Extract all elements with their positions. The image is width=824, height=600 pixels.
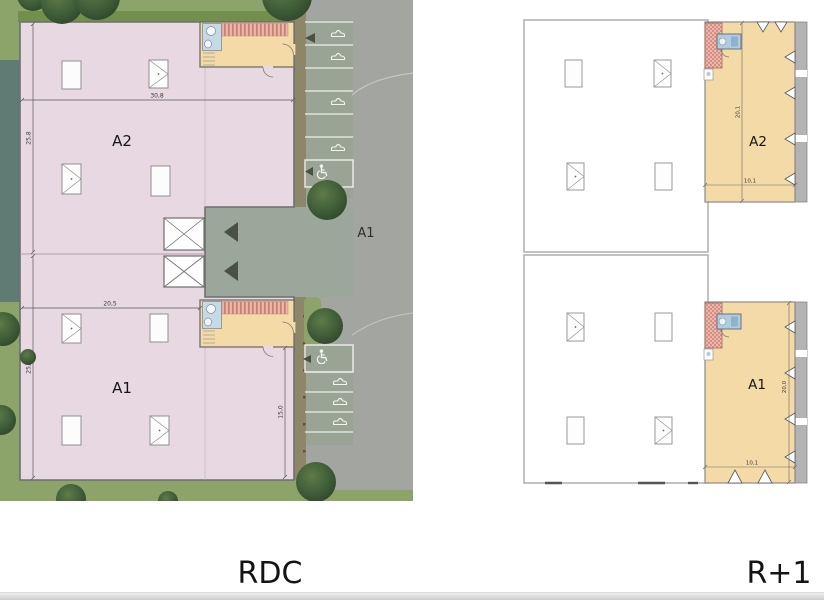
floor-caption-rdc: RDC xyxy=(200,555,340,593)
road-label: A1 xyxy=(357,226,374,241)
dim-a2-width: 30,8 xyxy=(150,93,164,100)
stairs xyxy=(222,302,288,315)
wall-strip xyxy=(795,22,807,202)
floorplan-canvas: 30,8 25,8 20,5 25,8 15,0 A2 A1 A1 xyxy=(0,0,824,600)
r1-unit-a2-label: A2 xyxy=(749,134,767,150)
dim-r1-a2-width: 10,1 xyxy=(744,179,756,185)
dim-r1-a1-depth: 20,0 xyxy=(782,380,788,393)
dim-a1-wing: 15,0 xyxy=(278,405,285,419)
tree-icon xyxy=(296,462,336,501)
wall-strip xyxy=(795,302,807,483)
bottom-bar xyxy=(0,592,824,600)
r1-hall-north-void xyxy=(524,20,708,252)
unit-a1-label: A1 xyxy=(112,379,132,397)
unit-a2-label: A2 xyxy=(112,132,132,150)
floor-plan-r1: 20,1 10,1 20,0 10,1 A2 A1 xyxy=(517,15,817,495)
r1-hall-south-void xyxy=(524,255,708,483)
dim-a2-depth: 25,8 xyxy=(26,131,33,145)
floor-caption-r1: R+1 xyxy=(709,555,824,593)
tree-icon xyxy=(307,308,343,344)
dim-r1-a1-width: 10,1 xyxy=(746,461,758,467)
tree-icon xyxy=(307,180,347,220)
dim-r1-a2-depth: 20,1 xyxy=(736,106,742,118)
stairs xyxy=(222,24,288,37)
tree-icon xyxy=(20,349,36,365)
site-plan-rdc: 30,8 25,8 20,5 25,8 15,0 A2 A1 A1 xyxy=(0,0,413,501)
door-gap xyxy=(263,345,273,348)
r1-mezzanine-a2 xyxy=(704,22,807,202)
door-gap xyxy=(263,66,273,69)
r1-unit-a1-label: A1 xyxy=(748,377,766,393)
dim-a1-width: 20,5 xyxy=(103,301,117,308)
